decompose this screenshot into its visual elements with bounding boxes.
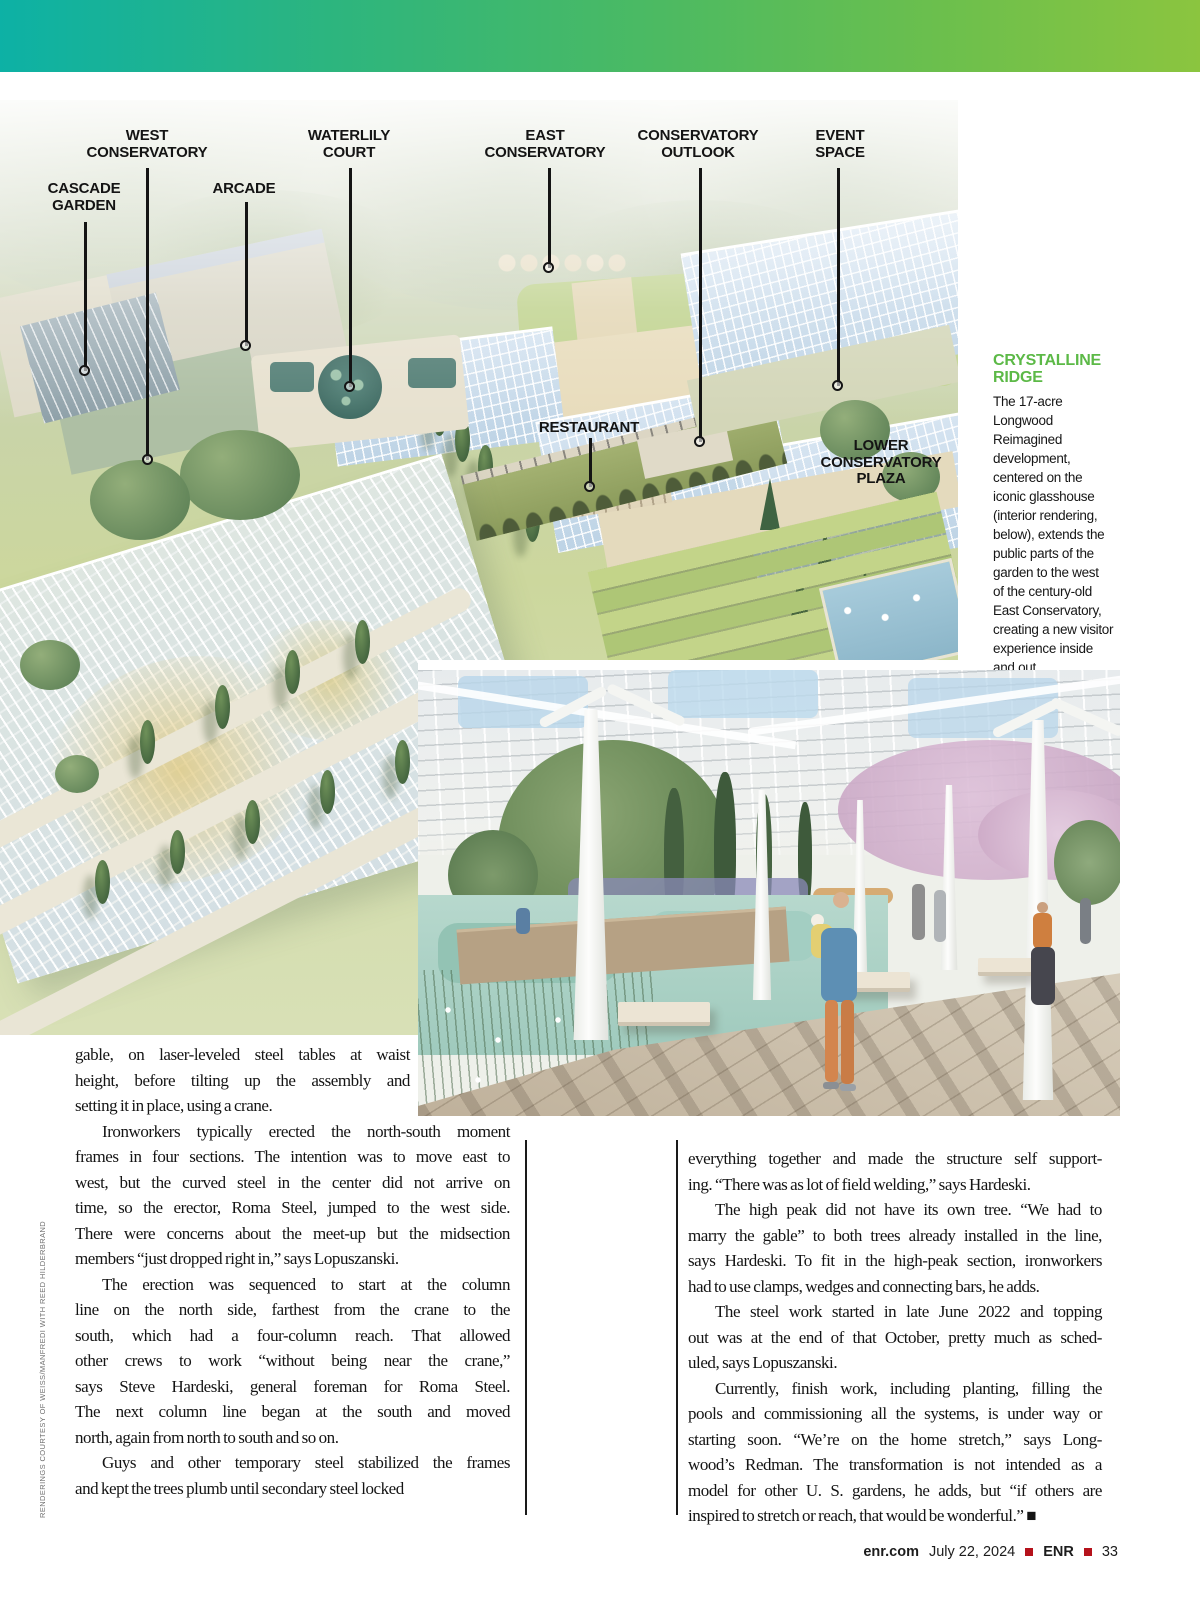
sidebar-crystalline-ridge: CRYSTALLINE RIDGE The 17-acre LongwoodRe… [993, 352, 1125, 677]
footer-site: enr.com [863, 1544, 919, 1560]
footer-page-number: 33 [1102, 1544, 1118, 1560]
callout-waterlily-court: WATERLILY COURT [308, 128, 390, 161]
callout-dot-event-space [832, 380, 843, 391]
article-column-2: everything together and made the structu… [688, 1146, 1102, 1529]
footer-brand: ENR [1043, 1544, 1074, 1560]
callout-event-space: EVENT SPACE [815, 128, 865, 161]
magazine-page: WEST CONSERVATORY CASCADE GARDEN ARCADE … [0, 0, 1200, 1600]
footer-separator-icon [1025, 1548, 1033, 1556]
callout-dot-conservatory-outlook [694, 436, 705, 447]
sidebar-title: CRYSTALLINE RIDGE [993, 352, 1125, 386]
visitor-woman [1030, 902, 1056, 1012]
callout-restaurant: RESTAURANT [539, 420, 639, 437]
callout-dot-waterlily-court [344, 381, 355, 392]
footer-separator-icon [1084, 1548, 1092, 1556]
visitor-man-with-child [813, 892, 865, 1092]
article-col2-paragraphs: everything together and made the structu… [688, 1146, 1102, 1529]
photo-credit-vertical: RENDERINGS COURTESY OF WEISS/MANFREDI WI… [38, 1242, 47, 1518]
callout-west-conservatory: WEST CONSERVATORY [87, 128, 208, 161]
callout-dot-east-conservatory [543, 262, 554, 273]
callout-lower-conservatory-plaza: LOWER CONSERVATORY PLAZA [821, 438, 942, 488]
callout-dot-cascade-garden [79, 365, 90, 376]
callout-arcade: ARCADE [213, 181, 276, 198]
article-col1-paragraphs: Ironworkers typically erected the north-… [75, 1119, 510, 1502]
top-gradient-bar [0, 0, 1200, 72]
callout-dot-restaurant [584, 481, 595, 492]
sidebar-body: The 17-acre LongwoodReimagineddevelopmen… [993, 392, 1125, 677]
article-intro-lines: gable, on laser-leveled steel tables at … [75, 1042, 410, 1119]
column-rule-left [525, 1140, 527, 1515]
callout-dot-arcade [240, 340, 251, 351]
callout-dot-west-conservatory [142, 454, 153, 465]
footer-date: July 22, 2024 [929, 1544, 1015, 1560]
callout-cascade-garden: CASCADE GARDEN [48, 181, 121, 214]
callout-east-conservatory: EAST CONSERVATORY [485, 128, 606, 161]
column-rule-right [676, 1140, 678, 1515]
callout-conservatory-outlook: CONSERVATORY OUTLOOK [638, 128, 759, 161]
interior-rendering [418, 670, 1120, 1116]
page-footer: enr.com July 22, 2024 ENR 33 [863, 1544, 1118, 1560]
